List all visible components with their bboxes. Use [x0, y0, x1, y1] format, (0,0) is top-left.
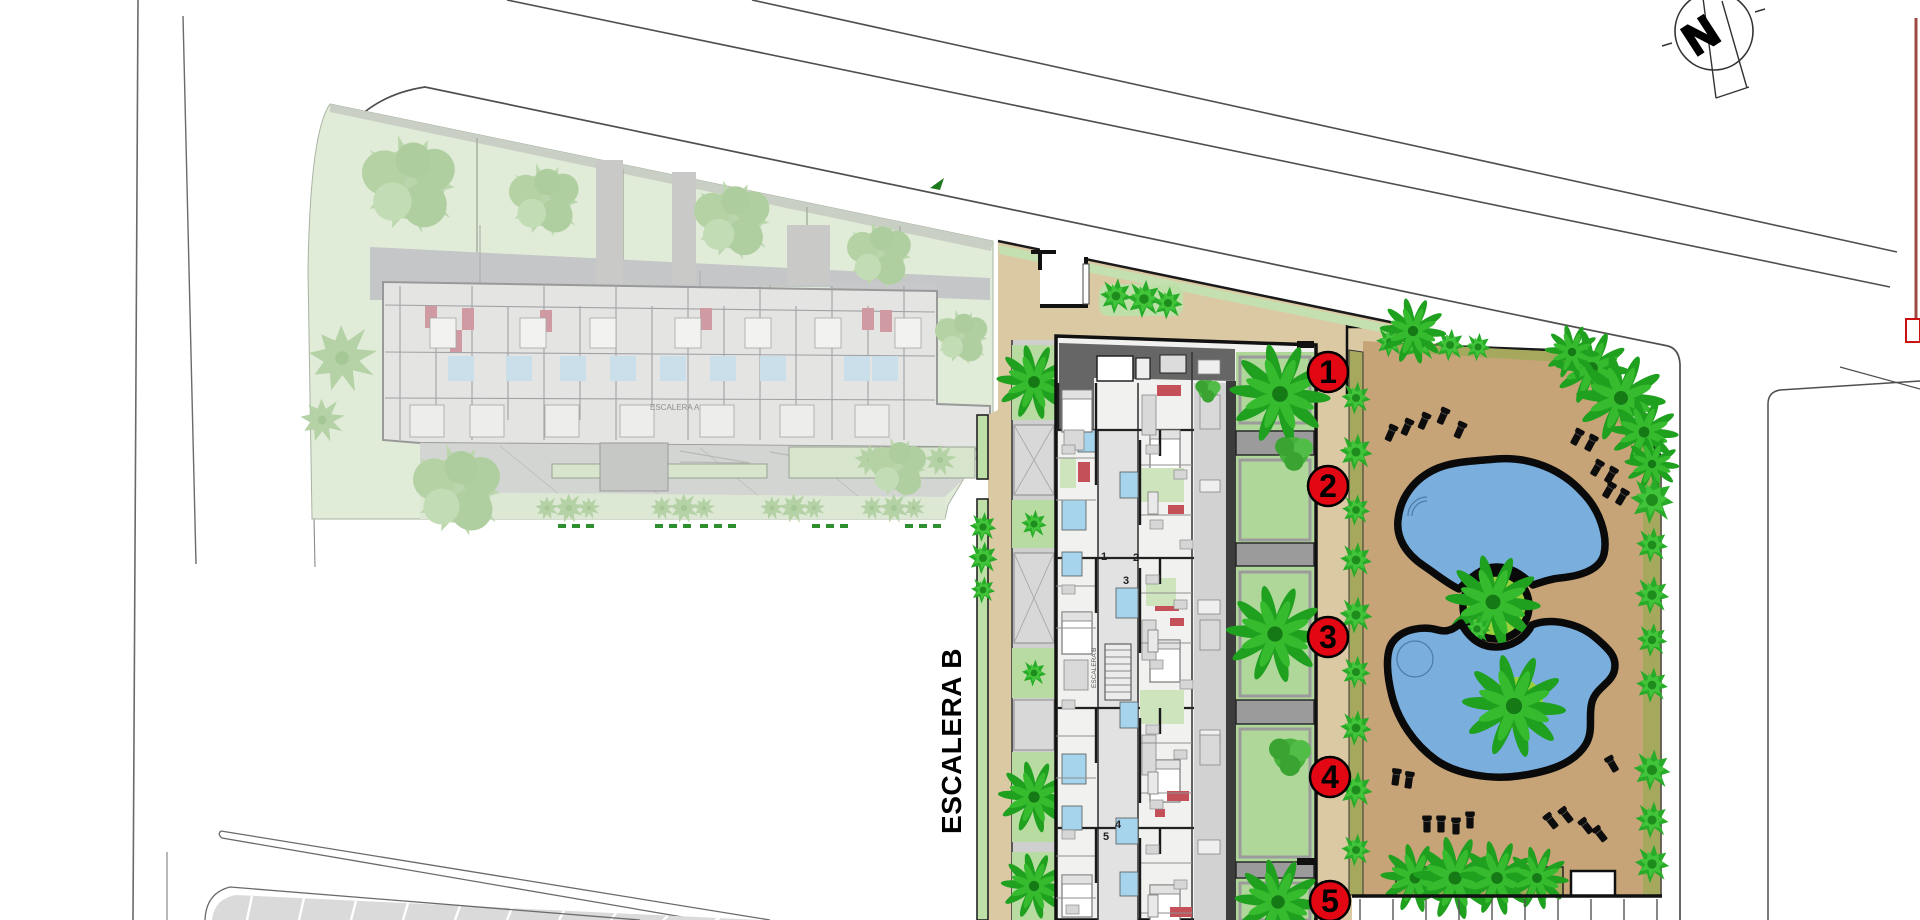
svg-text:ESCALERA A: ESCALERA A	[650, 403, 700, 412]
svg-text:ESCALERA B: ESCALERA B	[1091, 648, 1098, 688]
svg-text:5: 5	[1321, 883, 1339, 919]
svg-text:ESCALERA B: ESCALERA B	[936, 648, 967, 834]
svg-text:1: 1	[1319, 354, 1337, 390]
svg-text:2: 2	[1133, 552, 1139, 564]
svg-text:4: 4	[1115, 819, 1122, 831]
svg-text:2: 2	[1319, 468, 1337, 504]
svg-text:3: 3	[1319, 619, 1337, 655]
svg-text:1: 1	[1101, 551, 1107, 563]
svg-text:3: 3	[1123, 575, 1129, 587]
svg-text:4: 4	[1321, 759, 1339, 795]
svg-text:5: 5	[1103, 831, 1109, 843]
